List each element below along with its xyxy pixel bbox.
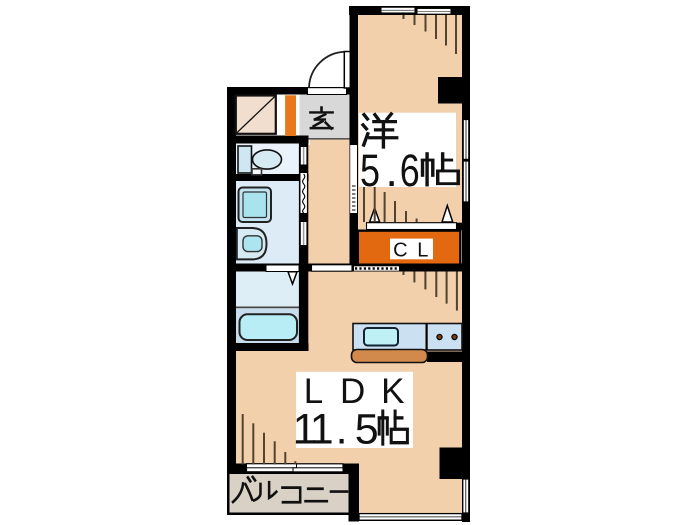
svg-text:.: . [385, 145, 398, 196]
svg-text:L: L [417, 239, 428, 261]
svg-text:5: 5 [355, 406, 379, 454]
svg-text:C: C [393, 239, 407, 261]
svg-text:.: . [336, 406, 348, 454]
svg-text:K: K [381, 372, 404, 411]
svg-text:1: 1 [310, 406, 334, 454]
svg-text:5: 5 [360, 145, 380, 196]
svg-text:6: 6 [400, 145, 420, 196]
